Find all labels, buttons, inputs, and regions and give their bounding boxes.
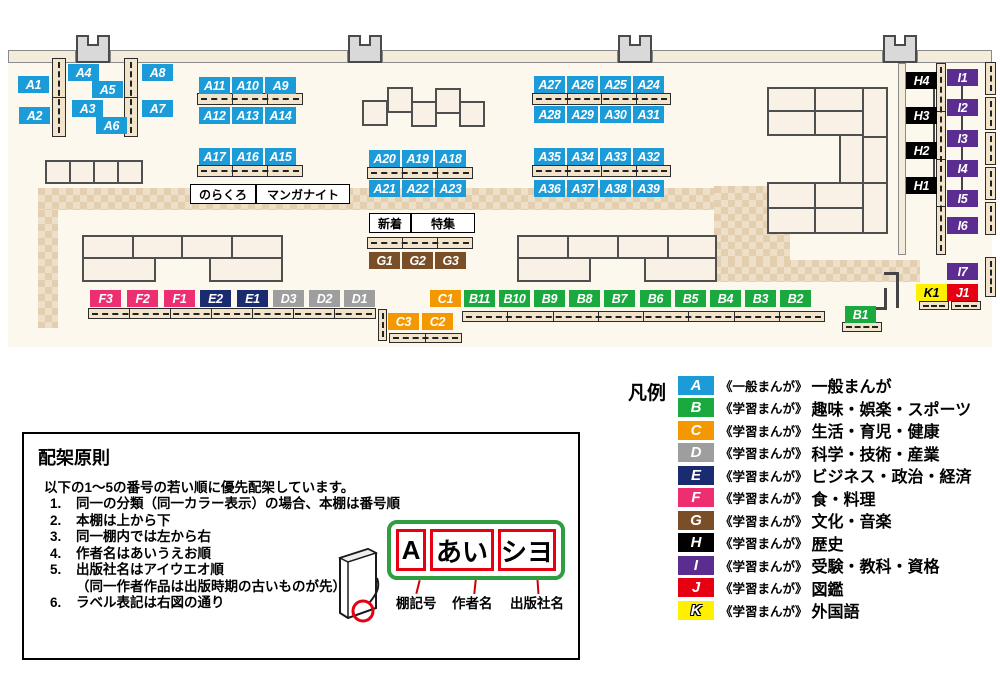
shelf-label-H2: H2	[906, 142, 937, 159]
spine-label-example: Aあいシヨ	[387, 520, 565, 580]
spine-label-segment: A	[396, 529, 426, 571]
shelf-label-C1: C1	[430, 290, 461, 307]
legend-color-chip: H	[678, 533, 714, 552]
shelf-label-A8: A8	[142, 64, 173, 81]
spine-label-caption: 作者名	[452, 592, 493, 612]
legend-row-G: G《学習まんが》文化・音楽	[678, 509, 994, 532]
shelf-label-A30: A30	[600, 106, 631, 123]
shelf-label-B1: B1	[845, 306, 876, 323]
shelf-label-J1: J1	[947, 284, 978, 301]
legend-series: 《学習まんが》	[720, 511, 808, 530]
shelf-label-A25: A25	[600, 76, 631, 93]
legend-category: 図鑑	[812, 576, 844, 600]
shelf-label-B3: B3	[745, 290, 776, 307]
shelf-label-I5: I5	[947, 190, 978, 207]
legend-color-chip: C	[678, 421, 714, 440]
principles-box: 配架原則 以下の1～5の番号の若い順に優先配架しています。 1.同一の分類（同一…	[22, 432, 580, 660]
legend-color-chip: A	[678, 376, 714, 395]
shelf-label-F1: F1	[164, 290, 195, 307]
shelf-label-D2: D2	[309, 290, 340, 307]
legend-title: 凡例	[628, 378, 666, 405]
shelf-label-A31: A31	[633, 106, 664, 123]
shelf-label-B6: B6	[640, 290, 671, 307]
shelf-label-A14: A14	[265, 107, 296, 124]
legend-series: 《学習まんが》	[720, 556, 808, 575]
legend-color-chip: I	[678, 556, 714, 575]
shelf-label-A18: A18	[435, 150, 466, 167]
shelf-label-B4: B4	[710, 290, 741, 307]
shelf-label-A23: A23	[435, 180, 466, 197]
shelf-label-H3: H3	[906, 107, 937, 124]
shelf-label-A34: A34	[567, 148, 598, 165]
legend-category: 食・料理	[812, 486, 876, 510]
shelf-label-I7: I7	[947, 263, 978, 280]
legend-rows: A《一般まんが》一般まんがB《学習まんが》趣味・娯楽・スポーツC《学習まんが》生…	[678, 374, 994, 622]
shelf-label-A36: A36	[534, 180, 565, 197]
shelf-label-A20: A20	[369, 150, 400, 167]
principles-title: 配架原則	[38, 444, 110, 470]
map-callout: 特集	[411, 213, 475, 233]
shelf-label-G1: G1	[369, 252, 400, 269]
legend-color-chip: D	[678, 443, 714, 462]
shelf-label-F2: F2	[127, 290, 158, 307]
book-icon	[330, 544, 386, 626]
legend-color-chip: B	[678, 398, 714, 417]
legend-series: 《学習まんが》	[720, 488, 808, 507]
shelf-label-B10: B10	[499, 290, 530, 307]
shelf-label-A26: A26	[567, 76, 598, 93]
legend-series: 《学習まんが》	[720, 533, 808, 552]
legend-series: 《学習まんが》	[720, 578, 808, 597]
legend-series: 《一般まんが》	[720, 376, 808, 395]
legend-row-H: H《学習まんが》歴史	[678, 532, 994, 555]
shelf-label-I4: I4	[947, 160, 978, 177]
legend-row-A: A《一般まんが》一般まんが	[678, 374, 994, 397]
legend-series: 《学習まんが》	[720, 601, 808, 620]
principle-item: 2.本棚は上から下	[50, 513, 400, 530]
shelf-label-I3: I3	[947, 130, 978, 147]
map-callout: のらくろ	[190, 184, 256, 204]
legend-category: 外国語	[812, 598, 860, 622]
shelf-label-A5: A5	[92, 81, 123, 98]
legend-category: 受験・教科・資格	[812, 553, 940, 577]
shelf-label-B11: B11	[464, 290, 495, 307]
shelf-label-A24: A24	[633, 76, 664, 93]
shelf-label-A6: A6	[96, 117, 127, 134]
shelf-label-B8: B8	[569, 290, 600, 307]
shelf-label-A10: A10	[232, 77, 263, 94]
legend-category: 歴史	[812, 531, 844, 555]
shelf-label-A3: A3	[72, 100, 103, 117]
shelf-label-B2: B2	[780, 290, 811, 307]
shelf-label-A22: A22	[402, 180, 433, 197]
shelf-label-A27: A27	[534, 76, 565, 93]
shelf-label-A13: A13	[232, 107, 263, 124]
shelf-label-G3: G3	[435, 252, 466, 269]
shelf-label-A17: A17	[199, 148, 230, 165]
shelf-label-E1: E1	[237, 290, 268, 307]
map-callout: 新着	[369, 213, 411, 233]
shelf-label-C3: C3	[388, 313, 419, 330]
legend-category: 趣味・娯楽・スポーツ	[812, 396, 972, 420]
legend: 凡例 A《一般まんが》一般まんがB《学習まんが》趣味・娯楽・スポーツC《学習まん…	[622, 374, 994, 622]
shelf-label-C2: C2	[422, 313, 453, 330]
shelf-label-A2: A2	[19, 107, 50, 124]
shelf-label-A7: A7	[142, 100, 173, 117]
shelf-label-A15: A15	[265, 148, 296, 165]
legend-category: 一般まんが	[812, 373, 892, 397]
legend-row-B: B《学習まんが》趣味・娯楽・スポーツ	[678, 397, 994, 420]
principle-item: 1.同一の分類（同一カラー表示）の場合、本棚は番号順	[50, 496, 400, 513]
shelf-label-A1: A1	[18, 76, 49, 93]
legend-row-K: K《学習まんが》外国語	[678, 599, 994, 622]
shelf-label-H4: H4	[906, 72, 937, 89]
legend-row-I: I《学習まんが》受験・教科・資格	[678, 554, 994, 577]
spine-label-caption: 棚記号	[396, 592, 437, 612]
legend-color-chip: G	[678, 511, 714, 530]
shelf-label-A19: A19	[402, 150, 433, 167]
legend-category: 文化・音楽	[812, 508, 892, 532]
spine-label-segment: シヨ	[498, 529, 556, 571]
spine-label-segment: あい	[430, 529, 494, 571]
shelf-label-A39: A39	[633, 180, 664, 197]
shelf-label-B7: B7	[604, 290, 635, 307]
shelf-label-D3: D3	[273, 290, 304, 307]
shelf-label-A12: A12	[199, 107, 230, 124]
shelf-label-A11: A11	[199, 77, 230, 94]
shelf-label-A21: A21	[369, 180, 400, 197]
shelf-label-A29: A29	[567, 106, 598, 123]
legend-row-F: F《学習まんが》食・料理	[678, 487, 994, 510]
shelf-label-A38: A38	[600, 180, 631, 197]
legend-row-C: C《学習まんが》生活・育児・健康	[678, 419, 994, 442]
shelf-label-A35: A35	[534, 148, 565, 165]
shelf-label-I2: I2	[947, 99, 978, 116]
shelf-label-F3: F3	[90, 290, 121, 307]
shelf-label-A33: A33	[600, 148, 631, 165]
shelf-label-B5: B5	[675, 290, 706, 307]
legend-category: ビジネス・政治・経済	[812, 463, 972, 487]
shelf-label-K1: K1	[916, 284, 947, 301]
legend-color-chip: E	[678, 466, 714, 485]
legend-color-chip: J	[678, 578, 714, 597]
legend-series: 《学習まんが》	[720, 466, 808, 485]
legend-color-chip: K	[678, 601, 714, 620]
manga-floor-map: A1A2A4A5A3A6A8A7A11A10A9A12A13A14A17A16A…	[0, 0, 1000, 700]
legend-row-E: E《学習まんが》ビジネス・政治・経済	[678, 464, 994, 487]
shelf-label-A4: A4	[68, 64, 99, 81]
shelf-label-I6: I6	[947, 217, 978, 234]
shelf-label-A37: A37	[567, 180, 598, 197]
legend-category: 科学・技術・産業	[812, 441, 940, 465]
legend-row-D: D《学習まんが》科学・技術・産業	[678, 442, 994, 465]
shelf-label-B9: B9	[534, 290, 565, 307]
shelf-label-D1: D1	[344, 290, 375, 307]
legend-series: 《学習まんが》	[720, 443, 808, 462]
shelf-label-H1: H1	[906, 177, 937, 194]
legend-series: 《学習まんが》	[720, 421, 808, 440]
legend-category: 生活・育児・健康	[812, 418, 940, 442]
shelf-label-A32: A32	[633, 148, 664, 165]
spine-label-caption: 出版社名	[510, 592, 564, 612]
shelf-label-A9: A9	[265, 77, 296, 94]
legend-color-chip: F	[678, 488, 714, 507]
shelf-label-A16: A16	[232, 148, 263, 165]
shelf-label-I1: I1	[947, 69, 978, 86]
shelf-label-E2: E2	[200, 290, 231, 307]
shelf-label-G2: G2	[402, 252, 433, 269]
map-callout: マンガナイト	[256, 184, 350, 204]
shelf-label-A28: A28	[534, 106, 565, 123]
legend-series: 《学習まんが》	[720, 398, 808, 417]
legend-row-J: J《学習まんが》図鑑	[678, 577, 994, 600]
principles-intro: 以下の1～5の番号の若い順に優先配架しています。	[44, 476, 354, 496]
